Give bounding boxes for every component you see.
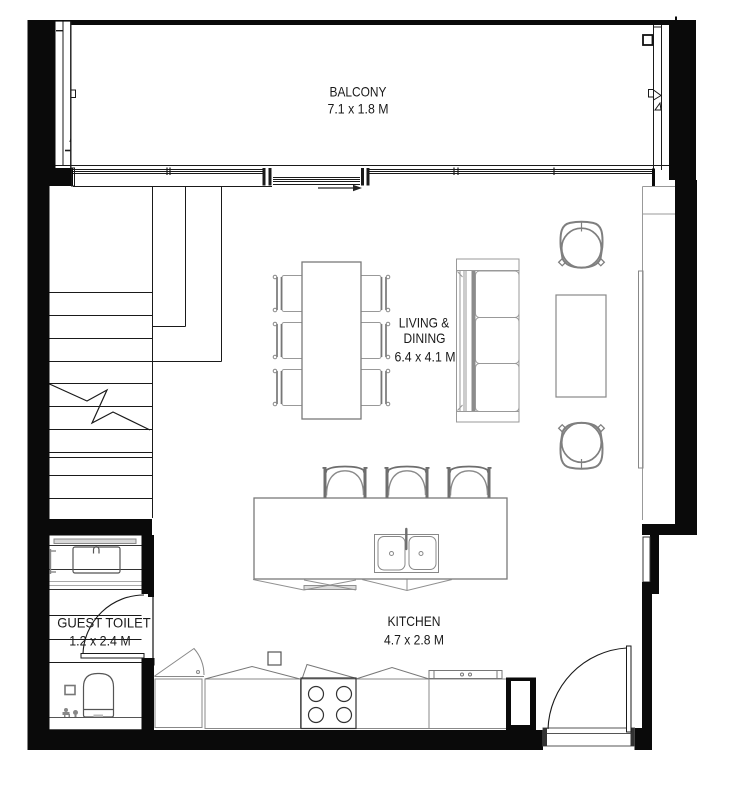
svg-text:1.2 x 2.4 M: 1.2 x 2.4 M [69, 633, 131, 649]
svg-text:7.1 x 1.8 M: 7.1 x 1.8 M [328, 101, 389, 117]
svg-text:4.7 x 2.8 M: 4.7 x 2.8 M [384, 632, 444, 648]
svg-text:6.4 x 4.1 M: 6.4 x 4.1 M [395, 349, 456, 365]
svg-text:LIVING &: LIVING & [399, 315, 450, 331]
svg-text:BALCONY: BALCONY [330, 84, 388, 100]
svg-text:GUEST TOILET: GUEST TOILET [57, 615, 151, 631]
svg-text:DINING: DINING [404, 330, 446, 346]
svg-text:KITCHEN: KITCHEN [388, 613, 441, 629]
